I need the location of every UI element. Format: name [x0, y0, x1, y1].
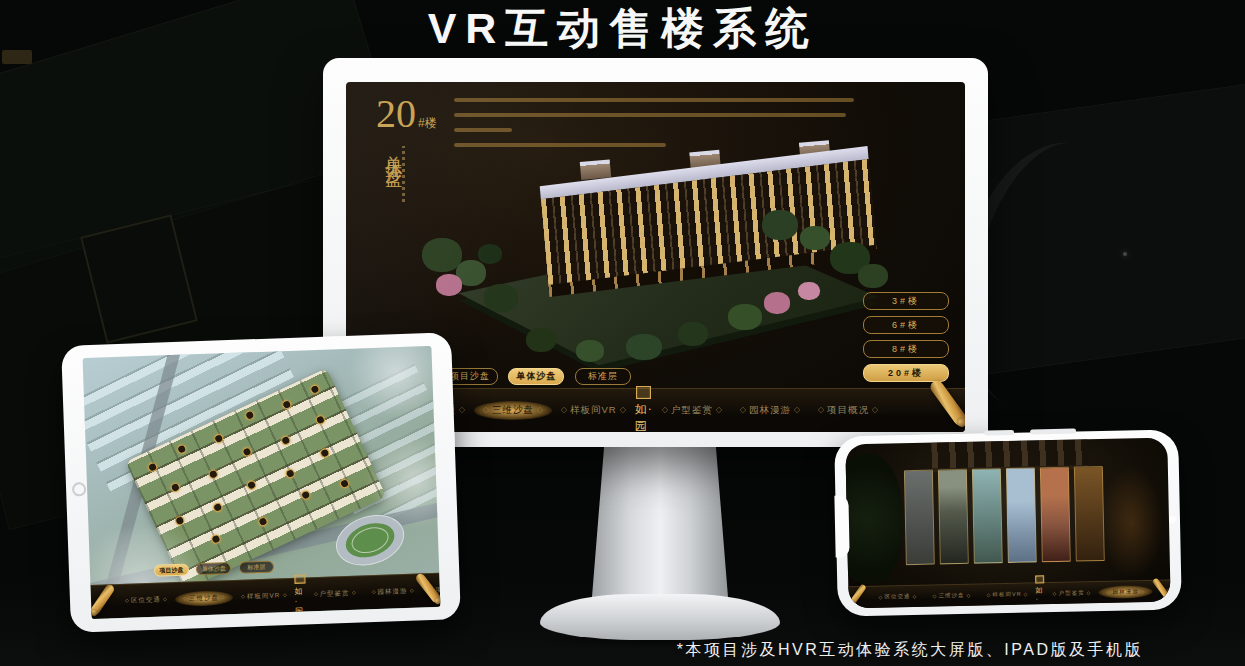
power-button [1030, 429, 1076, 435]
nav-item-floorplan[interactable]: 户型鉴赏 [305, 585, 363, 602]
nav-item-3d-sandbox[interactable]: 三维沙盘 [474, 401, 552, 420]
subtab-standard-floor[interactable]: 标准层 [575, 368, 631, 385]
nav-item-3d-sandbox[interactable]: 三维沙盘 [175, 590, 233, 607]
subtab-single-sandbox[interactable]: 单体沙盘 [508, 368, 564, 385]
nav-item-project-overview[interactable]: 项目概况 [809, 401, 887, 420]
nav-item-floorplan[interactable]: 户型鉴赏 [653, 401, 731, 420]
floor-button-group: 3#楼 6#楼 8#楼 20#楼 [863, 292, 949, 388]
subtab-standard-floor[interactable]: 标准层 [239, 561, 274, 574]
subtab-project-sandbox[interactable]: 项目沙盘 [154, 564, 189, 577]
volume-button [984, 430, 1014, 436]
scene-panel-shelves[interactable] [1074, 466, 1105, 562]
nav-item-model-room-vr[interactable]: 样板间VR [233, 588, 295, 605]
seal-icon [294, 574, 305, 583]
seal-icon [636, 386, 651, 399]
bg-light-speck [1123, 252, 1127, 256]
heading-english-text [402, 146, 405, 202]
brand-logo: 如·园 [294, 574, 306, 616]
subtab-single-sandbox[interactable]: 单体沙盘 [196, 562, 231, 575]
nav-item-3d-sandbox[interactable]: 三维沙盘 [924, 589, 978, 603]
page-background: VR互动售楼系统 20#楼 单体沙盘 [0, 0, 1245, 666]
seal-icon [1035, 575, 1044, 583]
brand-logo: 如·园 [635, 386, 653, 432]
nav-item-location[interactable]: 区位交通 [117, 592, 175, 609]
building-number: 20 [376, 91, 416, 136]
floor-button-3[interactable]: 3#楼 [863, 292, 949, 310]
nav-item-model-room-vr[interactable]: 样板间VR [978, 587, 1035, 601]
tablet-screen: 项目沙盘 单体沙盘 标准层 区位交通 三维沙盘 样板间VR 如·园 户型鉴赏 园… [83, 346, 441, 619]
building-model [426, 142, 918, 380]
main-navbar: 区位交通 三维沙盘 样板间VR 如·园 户型鉴赏 园林漫游 项目概况 [848, 580, 1170, 609]
phone-device: 区位交通 三维沙盘 样板间VR 如·园 户型鉴赏 园林漫游 项目概况 [834, 429, 1182, 616]
monitor-stand-neck [592, 445, 728, 597]
nav-item-garden-tour[interactable]: 园林漫游 [731, 401, 809, 420]
page-title: VR互动售楼系统 [0, 0, 1245, 57]
phone-screen: 区位交通 三维沙盘 样板间VR 如·园 户型鉴赏 园林漫游 项目概况 [845, 438, 1170, 609]
camera-icon [72, 482, 86, 496]
brand-name: 如·园 [635, 401, 653, 432]
scene-panel-garden[interactable] [972, 468, 1003, 564]
scene-panel-gallery [904, 466, 1105, 565]
scene-panel-courtyard[interactable] [904, 470, 935, 566]
nav-item-floorplan[interactable]: 户型鉴赏 [1044, 586, 1098, 600]
sandbox-subtabs: 项目沙盘 单体沙盘 标准层 [442, 365, 637, 385]
nav-item-location[interactable]: 区位交通 [870, 590, 924, 604]
brand-logo: 如·园 [1035, 575, 1045, 609]
warm-light-glow [1098, 466, 1164, 579]
model-building [538, 134, 881, 322]
nav-item-garden-tour[interactable]: 园林漫游 [1098, 585, 1152, 599]
scene-panel-interior[interactable] [938, 469, 969, 565]
footnote-text: *本项目涉及HVR互动体验系统大屏版、IPAD版及手机版 [677, 640, 1143, 661]
nav-item-model-room-vr[interactable]: 样板间VR [552, 401, 635, 420]
tablet-device: 项目沙盘 单体沙盘 标准层 区位交通 三维沙盘 样板间VR 如·园 户型鉴赏 园… [61, 332, 461, 632]
home-indicator-icon [1169, 516, 1176, 523]
roof-tower [580, 159, 611, 180]
foliage-decor [845, 453, 904, 584]
scene-panel-building[interactable] [1006, 467, 1037, 563]
floor-button-6[interactable]: 6#楼 [863, 316, 949, 334]
floor-button-8[interactable]: 8#楼 [863, 340, 949, 358]
scene-panel-autumn[interactable] [1040, 467, 1071, 563]
building-unit: #楼 [418, 116, 437, 130]
monitor-stand-base [540, 594, 780, 640]
phone-notch [834, 495, 849, 557]
sandbox-subtabs: 项目沙盘 单体沙盘 标准层 [154, 555, 277, 577]
nav-item-garden-tour[interactable]: 园林漫游 [363, 583, 421, 600]
